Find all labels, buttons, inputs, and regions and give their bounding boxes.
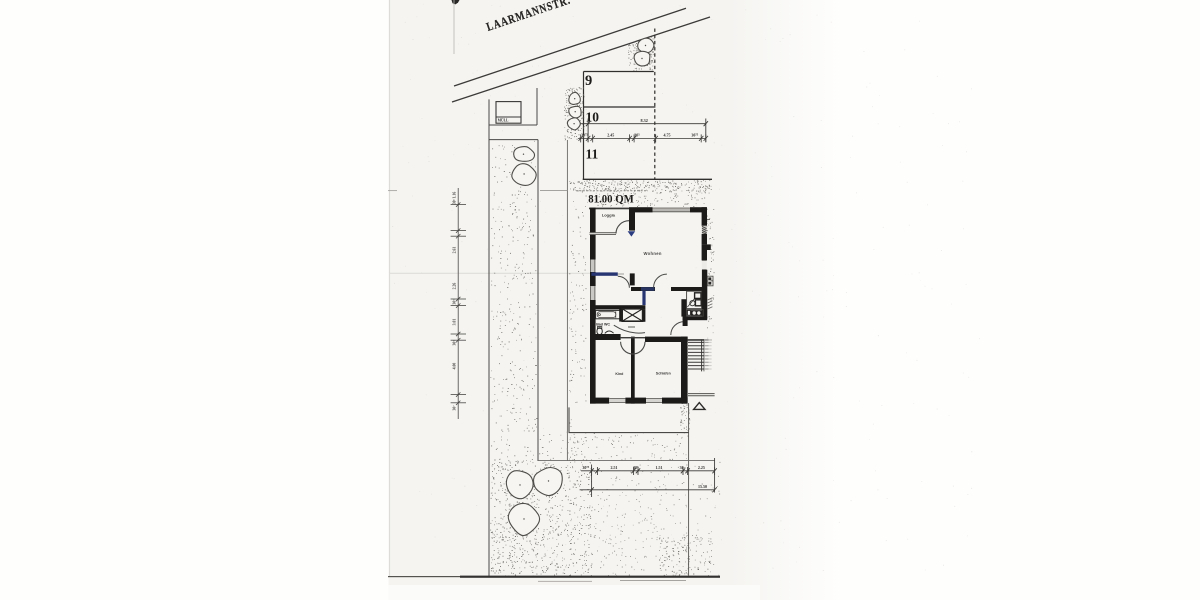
svg-text:2.45: 2.45 [607,132,614,137]
svg-text:1.51: 1.51 [656,465,663,470]
svg-text:4.00: 4.00 [452,363,456,370]
svg-text:2.61: 2.61 [452,247,456,254]
svg-text:Bad WC: Bad WC [596,323,610,327]
svg-text:30⁷: 30⁷ [452,405,456,411]
svg-text:30: 30 [680,465,684,470]
svg-text:30⁵ 1.16: 30⁵ 1.16 [452,192,456,205]
svg-text:8.32: 8.32 [641,118,648,123]
svg-text:3.01: 3.01 [452,319,456,326]
svg-text:9: 9 [585,73,592,89]
svg-text:4.75: 4.75 [664,132,671,137]
svg-text:11: 11 [586,147,599,162]
svg-text:Schlafen: Schlafen [656,372,671,376]
svg-text:81.00 QM: 81.00 QM [588,192,634,206]
svg-text:2.26: 2.26 [452,283,456,290]
svg-text:10: 10 [586,110,600,125]
svg-text:Loggia: Loggia [602,212,616,217]
svg-text:Kind: Kind [615,372,623,376]
svg-text:Wohnen: Wohnen [644,251,662,256]
svg-text:2.25: 2.25 [698,465,705,470]
svg-text:15.50: 15.50 [698,484,707,489]
svg-text:2.51: 2.51 [611,465,618,470]
svg-text:30⁵: 30⁵ [452,340,456,346]
svg-text:30⁵: 30⁵ [452,299,456,305]
svg-text:MÜLL: MÜLL [498,118,509,123]
